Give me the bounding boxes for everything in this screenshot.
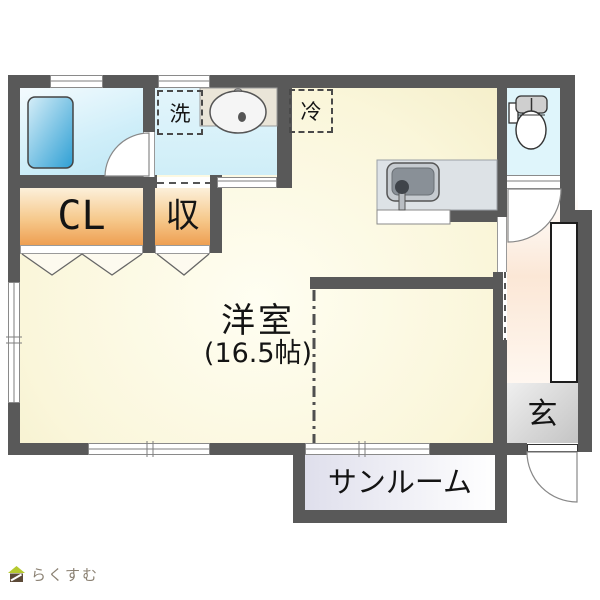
window-left [8,282,20,403]
toilet-room-floor [507,88,560,175]
storage-door-track [155,245,210,254]
sunroom-label: サンルーム [300,460,500,505]
door-entrance-panel [527,444,578,452]
logo-house-icon [8,566,25,583]
door-washroom-sliding [217,177,277,188]
logo: らくすむ [8,564,99,585]
entrance-label-text: 玄 [528,399,558,431]
bathroom-floor [20,88,143,175]
entrance-label: 玄 [507,394,578,436]
washer-space-label: 洗 [170,98,191,128]
main-room-name: 洋室 [221,304,295,340]
opening-corridor-dashed [503,272,507,340]
wall-washroom-bottom [8,175,157,188]
main-room-label: 洋室 (16.5帖) [118,304,398,368]
wall-bath-wash-divider [143,88,155,132]
door-toilet-opening [507,175,560,189]
wall-toilet-left [497,88,507,217]
wall-entrance-sunroom-top [493,443,527,455]
closet-label-text: CL [57,195,105,237]
opening-storage-top [157,177,210,188]
logo-text: らくすむ [31,564,99,585]
storage-label: 収 [155,192,210,242]
wall-closet-divider [143,188,155,253]
wall-sunroom-bottom [293,510,507,523]
window-bathroom-top [50,75,103,88]
window-sunroom [305,443,430,455]
fridge-space-label: 冷 [301,96,322,126]
shoe-cabinet [550,222,578,383]
door-bathroom-opening [143,132,155,177]
storage-label-text: 収 [166,199,200,235]
wall-kitchen [310,277,497,289]
closet-label: CL [20,190,143,242]
sunroom-label-text: サンルーム [328,467,472,497]
closet-door-track [20,245,143,254]
wall-toilet-right [560,75,575,210]
floor-plan-page: 洗 冷 洋室 (16.5帖) CL 収 玄 サンルーム らくすむ [0,0,600,600]
door-entrance-swing [527,452,577,502]
window-bottom-left [88,443,210,455]
fridge-space: 冷 [289,89,333,133]
opening-main-corridor [497,217,507,272]
window-washroom-top [158,75,210,88]
main-room-size: (16.5帖) [204,340,312,368]
washer-space: 洗 [157,90,203,135]
wall-right-outer [578,210,592,452]
